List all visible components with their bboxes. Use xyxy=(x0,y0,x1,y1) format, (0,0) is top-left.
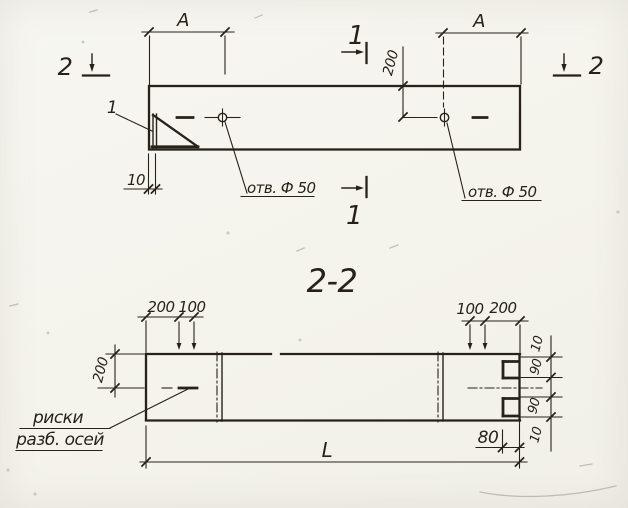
section-view-2-2: 2-2 xyxy=(15,262,562,468)
arrow-down-icon xyxy=(468,343,473,350)
dim-end-wall-10: 10 xyxy=(124,154,162,194)
dim-a-left-label: А xyxy=(176,10,189,31)
arrow-down-icon xyxy=(192,343,197,350)
dim-top-left-100: 100 xyxy=(178,298,205,316)
arrow-down-icon xyxy=(483,343,488,350)
dims-top-right: 100 200 xyxy=(456,299,528,352)
detail-mark-label: 1 xyxy=(107,98,117,118)
cut-1-bottom-label: 1 xyxy=(346,201,362,231)
mounting-hole-right xyxy=(404,109,487,126)
technical-drawing: 1 А xyxy=(0,0,628,508)
drawing-sheet: 1 А xyxy=(0,0,628,508)
dim-L-label: L xyxy=(322,438,333,462)
section-beam-outline xyxy=(146,354,520,421)
section-cut-2-left: 2 xyxy=(58,53,109,81)
dims-top-left: 200 100 xyxy=(138,298,206,352)
cut-2-left-label: 2 xyxy=(58,53,73,81)
chain-dim-90-bottom: 90 xyxy=(525,396,544,415)
chain-dim-10-bottom: 10 xyxy=(527,425,546,444)
end-notch-top xyxy=(503,362,518,379)
plan-view: 1 А xyxy=(58,10,604,231)
dim-span-a-left: А xyxy=(142,10,234,85)
hole-note-left-label: отв. Ф 50 xyxy=(247,179,316,197)
dim-top-right-200: 200 xyxy=(489,299,516,317)
chain-dim-10-top: 10 xyxy=(528,334,547,353)
dim-80-label: 80 xyxy=(478,428,499,448)
hole-note-right: отв. Ф 50 xyxy=(447,123,541,201)
detail-mark-1: 1 xyxy=(107,98,152,131)
axis-trace-right xyxy=(438,352,443,422)
arrow-right-icon xyxy=(356,185,364,190)
section-title: 2-2 xyxy=(307,262,358,300)
end-notch-bottom xyxy=(503,399,518,417)
dim-half-width-200: 200 xyxy=(90,345,144,397)
hole-note-right-label: отв. Ф 50 xyxy=(468,183,537,201)
corner-detail-triangle xyxy=(152,114,198,148)
section-cut-2-right: 2 xyxy=(554,52,603,80)
dim-span-a-right: А xyxy=(436,11,528,107)
mounting-hole-left xyxy=(177,109,240,126)
dim-10-label: 10 xyxy=(127,171,145,189)
dim-hole-offset-200: 200 xyxy=(380,47,407,121)
cut-1-top-label: 1 xyxy=(348,21,364,51)
arrow-down-icon xyxy=(177,343,182,350)
dim-top-right-100: 100 xyxy=(456,300,483,318)
axis-note-line1: риски xyxy=(32,408,83,428)
dim-a-right-label: А xyxy=(472,11,485,32)
dim-top-left-200: 200 xyxy=(147,298,174,316)
section-cut-1-bottom: 1 xyxy=(342,177,367,231)
dim-200-label: 200 xyxy=(380,48,402,77)
section-cut-1-top: 1 xyxy=(342,21,367,63)
dim-notch-depth-80: 80 xyxy=(476,428,524,453)
arrow-down-icon xyxy=(561,64,566,72)
scan-speckles xyxy=(7,10,619,497)
axis-trace-left xyxy=(217,352,222,422)
arrow-down-icon xyxy=(89,64,94,72)
axis-note-line2: разб. осей xyxy=(15,430,104,450)
cut-2-right-label: 2 xyxy=(589,52,604,80)
dim-overall-length-L: L xyxy=(140,421,527,468)
chain-dim-90-top: 90 xyxy=(527,357,546,376)
dim-200-left-label: 200 xyxy=(90,355,112,384)
hole-note-left: отв. Ф 50 xyxy=(225,122,316,197)
dims-right-chain: 10 90 90 10 xyxy=(521,334,562,451)
